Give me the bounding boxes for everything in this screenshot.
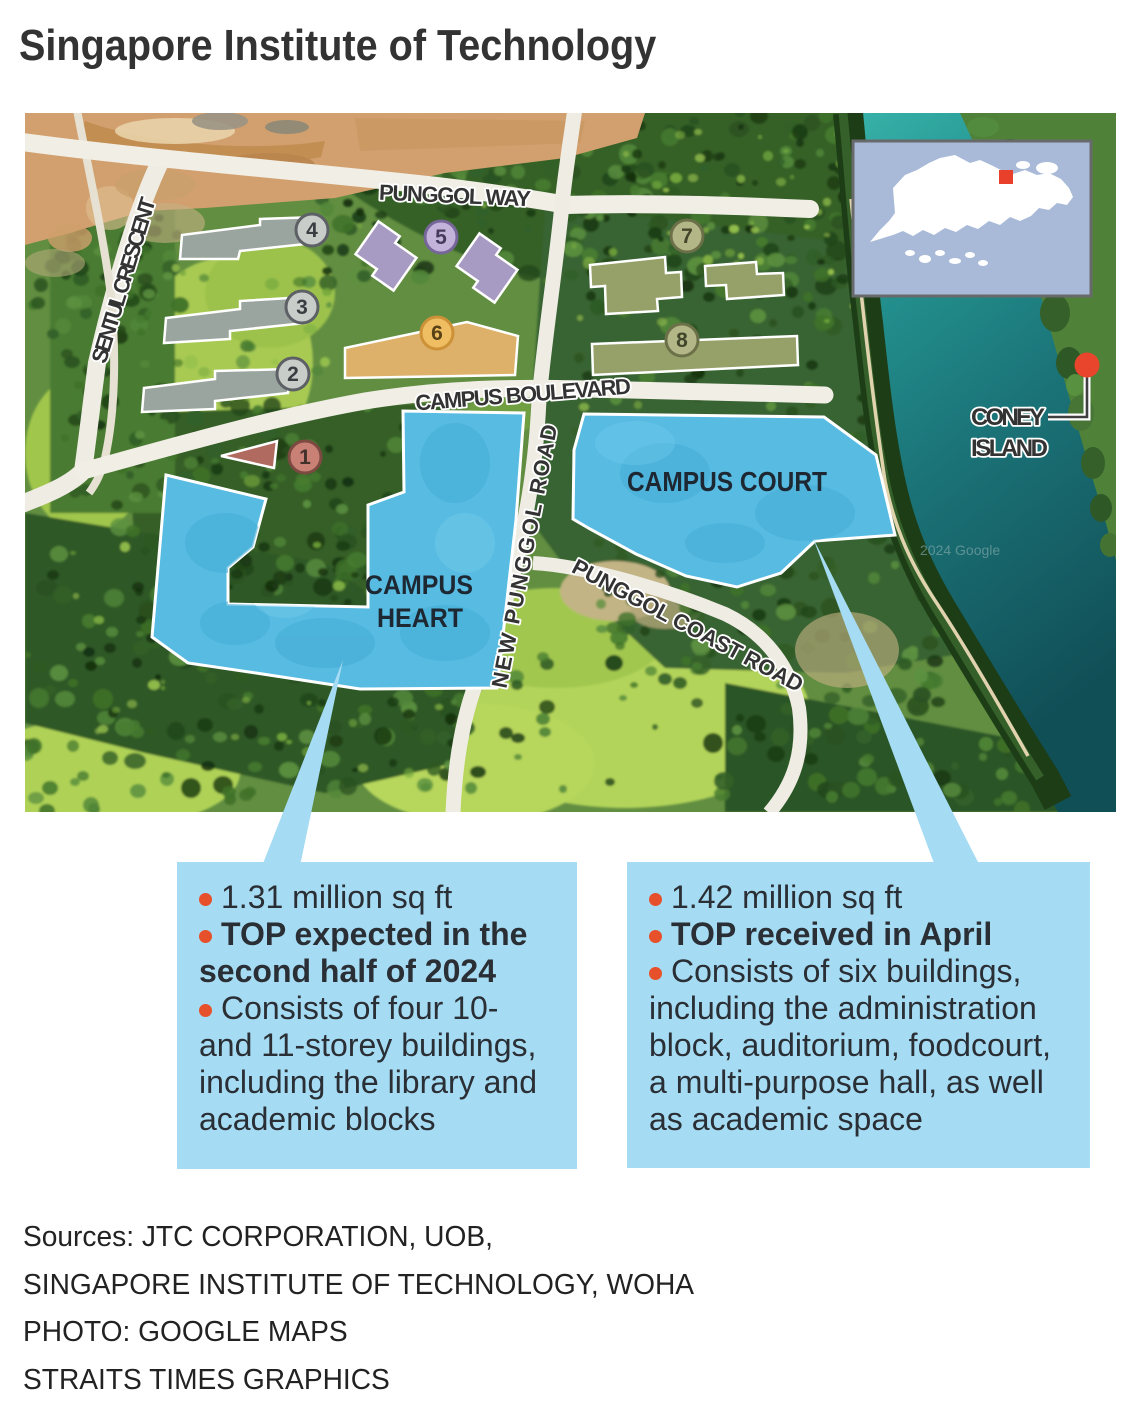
svg-text:1: 1 <box>299 446 311 469</box>
svg-text:CAMPUS: CAMPUS <box>365 570 473 600</box>
svg-text:8: 8 <box>676 329 688 352</box>
svg-text:4: 4 <box>306 219 318 242</box>
svg-text:7: 7 <box>681 225 693 248</box>
svg-text:CAMPUS COURT: CAMPUS COURT <box>627 466 827 497</box>
svg-text:6: 6 <box>431 322 443 345</box>
svg-text:5: 5 <box>435 226 447 249</box>
svg-text:ISLAND: ISLAND <box>971 435 1048 462</box>
svg-text:CONEY: CONEY <box>971 404 1045 431</box>
svg-text:2: 2 <box>287 363 299 386</box>
svg-text:HEART: HEART <box>377 603 463 633</box>
svg-text:3: 3 <box>296 296 308 319</box>
